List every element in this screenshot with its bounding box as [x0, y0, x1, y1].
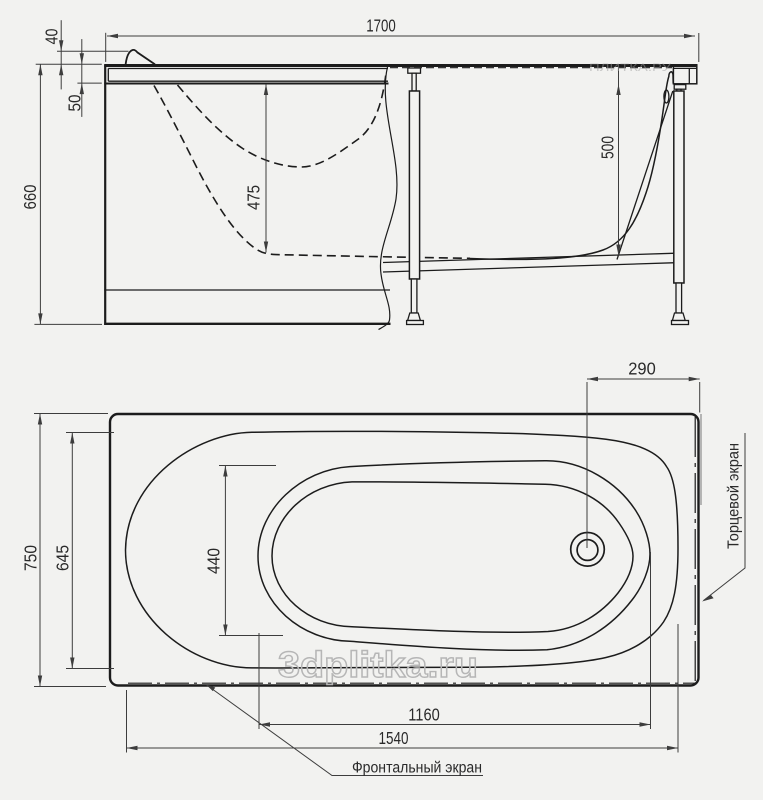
svg-text:500: 500 [598, 136, 618, 159]
svg-text:290: 290 [628, 359, 656, 379]
svg-text:50: 50 [65, 94, 85, 111]
svg-text:1540: 1540 [379, 728, 409, 748]
svg-text:660: 660 [20, 184, 40, 209]
svg-text:475: 475 [244, 185, 264, 210]
svg-text:645: 645 [53, 545, 73, 571]
svg-text:Торцевой экран: Торцевой экран [726, 443, 743, 549]
svg-text:ПЛИТКА.РУ: ПЛИТКА.РУ [589, 62, 672, 74]
svg-text:40: 40 [42, 28, 62, 44]
svg-text:440: 440 [204, 548, 224, 574]
svg-text:1160: 1160 [408, 704, 440, 724]
svg-text:1700: 1700 [366, 16, 396, 36]
svg-text:3dplitka.ru: 3dplitka.ru [278, 644, 478, 685]
svg-text:Фронтальный экран: Фронтальный экран [352, 760, 482, 777]
svg-text:750: 750 [21, 545, 41, 571]
